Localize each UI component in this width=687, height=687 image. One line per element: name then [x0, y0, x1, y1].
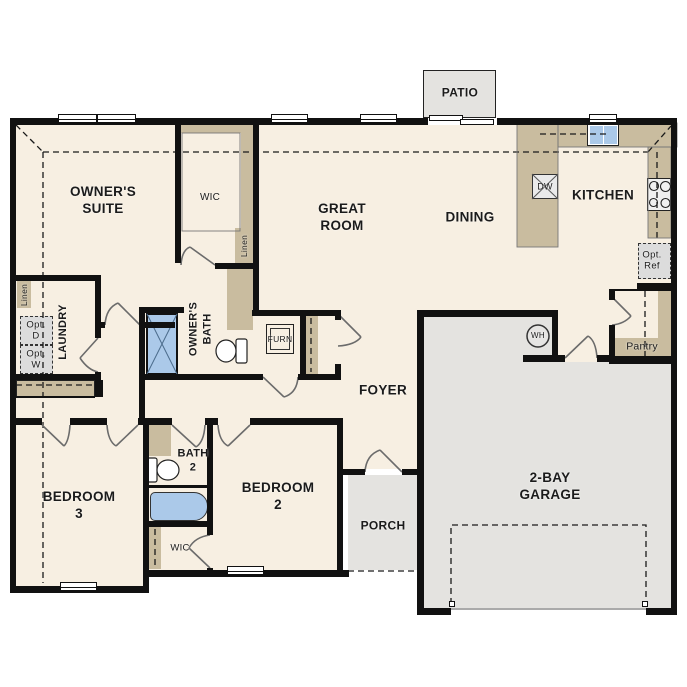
label-patio: PATIO	[442, 86, 478, 101]
garage-door-track-mark	[449, 601, 455, 607]
garage-door-outline	[451, 525, 646, 604]
wall	[343, 469, 365, 475]
wall	[417, 310, 424, 615]
bedroom2-door	[218, 425, 250, 446]
floor-plan: OWNER'S SUITE WIC GREAT ROOM DINING KITC…	[0, 0, 687, 687]
owners-suite-door	[105, 303, 140, 325]
window-mullion	[59, 119, 96, 120]
wall	[402, 469, 422, 475]
label-opt-fridge: Opt. Ref	[642, 250, 661, 273]
wall	[298, 374, 341, 380]
wall	[10, 118, 16, 593]
range-burners-icon	[650, 182, 671, 208]
label-dining: DINING	[445, 210, 494, 227]
wall	[10, 396, 95, 398]
wall	[300, 310, 306, 374]
wall	[637, 283, 677, 291]
plan-linework	[0, 0, 687, 687]
front-door	[365, 450, 402, 472]
wall	[175, 118, 181, 263]
label-bedroom2-wic: WIC	[170, 542, 189, 553]
wall	[207, 418, 213, 535]
wall	[139, 307, 184, 313]
label-linen-hall: Linen	[239, 235, 249, 257]
wall	[497, 118, 677, 125]
sliding-patio-door-panel	[460, 119, 494, 125]
owners-toilet-icon	[216, 339, 247, 363]
hall-door	[107, 425, 138, 446]
wall	[250, 418, 343, 425]
wall	[95, 322, 105, 328]
wall	[95, 275, 101, 338]
sliding-patio-door-panel	[429, 115, 463, 121]
wall	[143, 418, 149, 593]
pantry-door	[612, 297, 631, 325]
wall	[417, 608, 451, 615]
wall	[417, 310, 558, 317]
wall	[143, 521, 213, 527]
bath2-door	[172, 425, 205, 447]
window	[360, 114, 397, 123]
label-water-heater: WH	[531, 331, 545, 341]
window-mullion	[272, 119, 307, 120]
wall	[10, 418, 42, 425]
label-furnace: FURN	[268, 334, 293, 344]
garage-entry-door	[565, 336, 597, 358]
wall	[523, 355, 565, 362]
wall	[253, 118, 259, 267]
laundry-door	[80, 338, 98, 372]
window	[589, 114, 617, 123]
wall	[253, 267, 259, 310]
window	[227, 566, 264, 575]
wall	[609, 291, 615, 300]
label-porch: PORCH	[361, 519, 406, 534]
label-dishwasher: DW	[537, 182, 553, 193]
garage-door-track-mark	[642, 601, 648, 607]
label-pantry: Pantry	[626, 340, 658, 353]
wall	[215, 263, 253, 269]
wall	[10, 275, 101, 281]
window	[58, 114, 97, 123]
label-owners-wic: WIC	[200, 192, 220, 205]
label-bath-2: BATH 2	[178, 447, 209, 475]
label-laundry: LAUNDRY	[57, 304, 71, 359]
wall	[252, 310, 341, 316]
window-mullion	[590, 119, 616, 120]
bedroom3-door	[42, 425, 70, 446]
window-mullion	[361, 119, 396, 120]
window	[97, 114, 136, 123]
wic-shelf-line	[182, 133, 240, 231]
wall	[609, 289, 639, 291]
wall	[95, 380, 103, 397]
wall	[10, 374, 101, 380]
wall	[335, 364, 341, 374]
window-mullion	[98, 119, 135, 120]
bath2-toilet-icon	[146, 458, 179, 482]
window	[60, 582, 97, 591]
wall	[337, 418, 343, 577]
label-bedroom-2: BEDROOM 2	[242, 480, 315, 514]
label-great-room: GREAT ROOM	[318, 201, 366, 235]
wall	[138, 418, 172, 425]
label-foyer: FOYER	[359, 383, 407, 400]
window	[271, 114, 308, 123]
bedroom2-wic-door	[189, 535, 210, 568]
wall	[140, 322, 175, 328]
wall	[671, 118, 677, 615]
label-bedroom-3: BEDROOM 3	[43, 489, 116, 523]
wall	[335, 310, 341, 320]
wall	[205, 418, 218, 425]
wall	[139, 307, 145, 418]
wall	[143, 485, 213, 488]
foyer-closet-door	[338, 314, 361, 346]
wall	[207, 568, 213, 577]
wall	[70, 418, 107, 425]
window-mullion	[61, 587, 96, 588]
window-mullion	[228, 571, 263, 572]
wall	[646, 608, 677, 615]
appliance-details	[147, 174, 671, 609]
wall	[609, 356, 677, 364]
label-kitchen: KITCHEN	[572, 188, 634, 205]
owners-wic-door	[181, 247, 215, 265]
label-opt-dryer: Opt. D	[26, 320, 45, 343]
label-owners-bath: OWNER'S BATH	[187, 302, 215, 356]
wall	[139, 374, 263, 380]
furnace-closet-door	[263, 377, 298, 397]
label-owners-suite: OWNER'S SUITE	[70, 184, 136, 218]
label-garage: 2-BAY GARAGE	[519, 470, 580, 504]
label-linen-laundry: Linen	[19, 284, 29, 306]
label-opt-washer: Opt. W	[26, 349, 45, 372]
